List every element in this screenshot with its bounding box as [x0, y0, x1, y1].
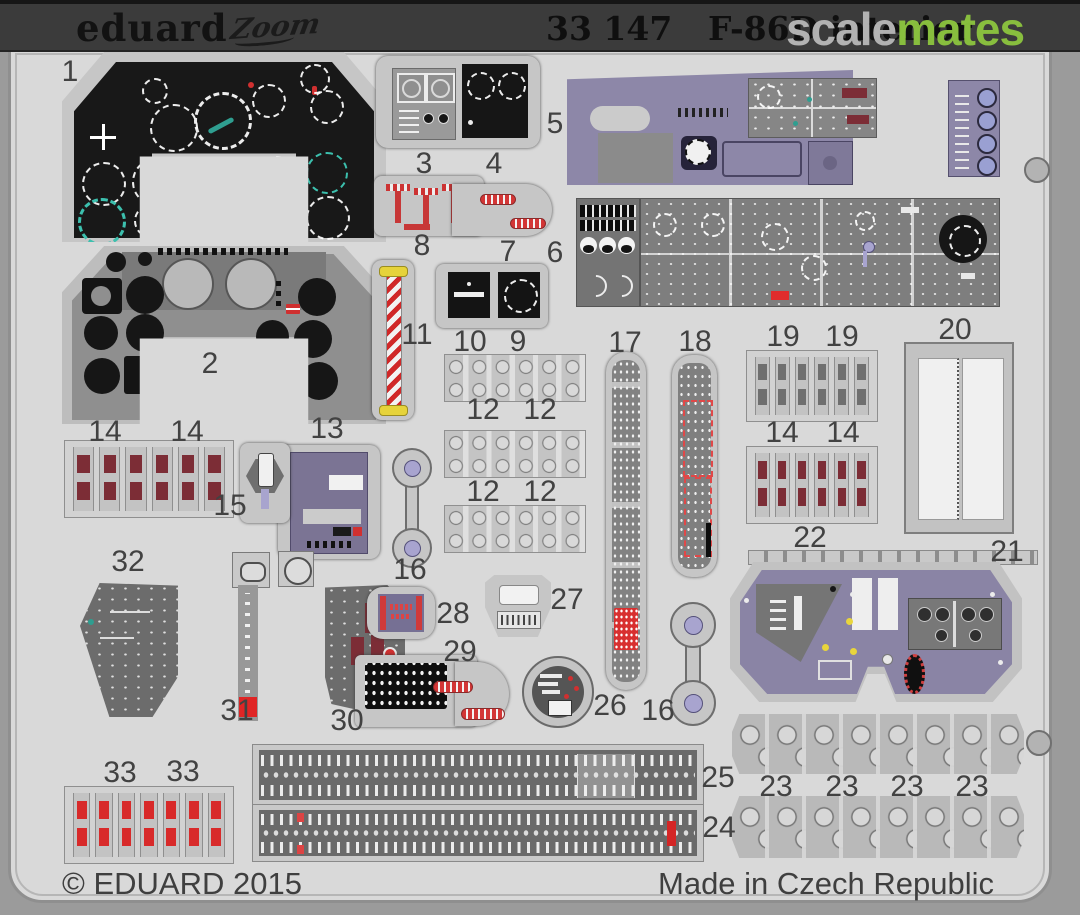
part-label-33: 33 [166, 755, 199, 789]
part-label-12: 12 [523, 393, 556, 427]
part-label-32: 32 [111, 545, 144, 579]
part-label-16: 16 [641, 694, 674, 728]
part-label-20: 20 [938, 313, 971, 347]
part-label-19: 19 [766, 320, 799, 354]
part-label-33: 33 [103, 756, 136, 790]
part-label-5: 5 [547, 107, 564, 141]
part-16-link [392, 448, 432, 568]
watermark-mates-text: mates [896, 3, 1024, 55]
part-25-breaker-strip [252, 744, 704, 806]
part-label-12: 12 [523, 475, 556, 509]
part-label-31: 31 [220, 694, 253, 728]
part-5-side-dial-panel [948, 80, 1000, 177]
part-32-31-console-assembly [62, 546, 352, 731]
part-3-sub-panel [392, 68, 456, 140]
part-label-8: 8 [414, 229, 431, 263]
zoom-series-logo: Zoom [228, 7, 323, 46]
part-label-27: 27 [550, 583, 583, 617]
part-label-3: 3 [416, 147, 433, 181]
part-label-23: 23 [825, 770, 858, 804]
eduard-brand-logo: eduard [76, 6, 228, 50]
part-label-15: 15 [213, 489, 246, 523]
part-label-2: 2 [202, 347, 219, 381]
part-label-30: 30 [330, 704, 363, 738]
part-label-16: 16 [393, 553, 426, 587]
part-label-22: 22 [793, 521, 826, 555]
part-label-18: 18 [678, 325, 711, 359]
part-4-clock-panel [462, 64, 528, 138]
part-label-11: 11 [401, 318, 432, 352]
part-label-14: 14 [765, 416, 798, 450]
part-29-30-bracket [352, 654, 512, 730]
part-label-29: 29 [443, 635, 476, 669]
part-label-14: 14 [826, 416, 859, 450]
part-label-23: 23 [955, 770, 988, 804]
copyright-text: © EDUARD 2015 [62, 866, 302, 902]
part-label-4: 4 [486, 147, 503, 181]
watermark-scale-text: scale [786, 3, 896, 55]
part-23-loop-strip [732, 796, 1024, 858]
part-23-loop-strip [732, 714, 1024, 774]
part-26-circular-panel [522, 656, 594, 728]
part-19-belt-strip [746, 350, 878, 422]
part-14-belt-strip [746, 446, 878, 524]
part-label-7: 7 [500, 235, 517, 269]
part-12-buckle-strip [444, 430, 586, 478]
part-label-13: 13 [310, 412, 343, 446]
part-16-link [670, 602, 716, 726]
part-label-25: 25 [701, 761, 734, 795]
part-label-26: 26 [593, 689, 626, 723]
part-32-left-console [80, 583, 178, 717]
part-label-24: 24 [702, 811, 735, 845]
part-12-buckle-strip [444, 505, 586, 553]
part-label-14: 14 [88, 415, 121, 449]
part-24-breaker-strip [252, 804, 704, 862]
catalog-number: 33 147 [546, 9, 672, 48]
fret-rivet-hole [1024, 157, 1050, 183]
part-15-ejection-handle-bracket [240, 443, 290, 523]
part-13-console-box [290, 452, 368, 554]
part-label-9: 9 [510, 325, 527, 359]
part-label-17: 17 [608, 326, 641, 360]
part-label-10: 10 [453, 325, 486, 359]
part-33-belt-strip [64, 786, 234, 864]
part-label-12: 12 [466, 393, 499, 427]
product-photo-eduard-photoetch-set: eduard Zoom 33 147 F-86D interior scalem… [0, 0, 1080, 915]
part-5-switch-cluster [748, 78, 877, 138]
part-12-buckle-strip [444, 354, 586, 402]
part-20-plate-frame [904, 342, 1014, 534]
made-in-text: Made in Czech Republic [658, 866, 994, 902]
part-label-12: 12 [466, 475, 499, 509]
part-28-placard [367, 587, 435, 639]
part-14-belt-strip [64, 440, 234, 518]
scalemates-watermark: scalemates [786, 2, 1024, 56]
part-label-23: 23 [759, 770, 792, 804]
part-7-knob-bracket [452, 184, 552, 236]
part-10-9-gauge-pair-frame [436, 264, 548, 328]
part-label-14: 14 [170, 415, 203, 449]
part-18-console-strip [672, 355, 717, 577]
part-label-21: 21 [990, 535, 1023, 569]
part-label-19: 19 [825, 320, 858, 354]
part-27-panel [485, 575, 551, 637]
part-label-1: 1 [62, 55, 79, 89]
part-label-28: 28 [436, 597, 469, 631]
part-label-23: 23 [890, 770, 923, 804]
part-17-console-strip [606, 352, 646, 690]
part-label-6: 6 [547, 236, 564, 270]
fret-rivet-hole [1026, 730, 1052, 756]
part-6-console-strip [576, 196, 998, 306]
